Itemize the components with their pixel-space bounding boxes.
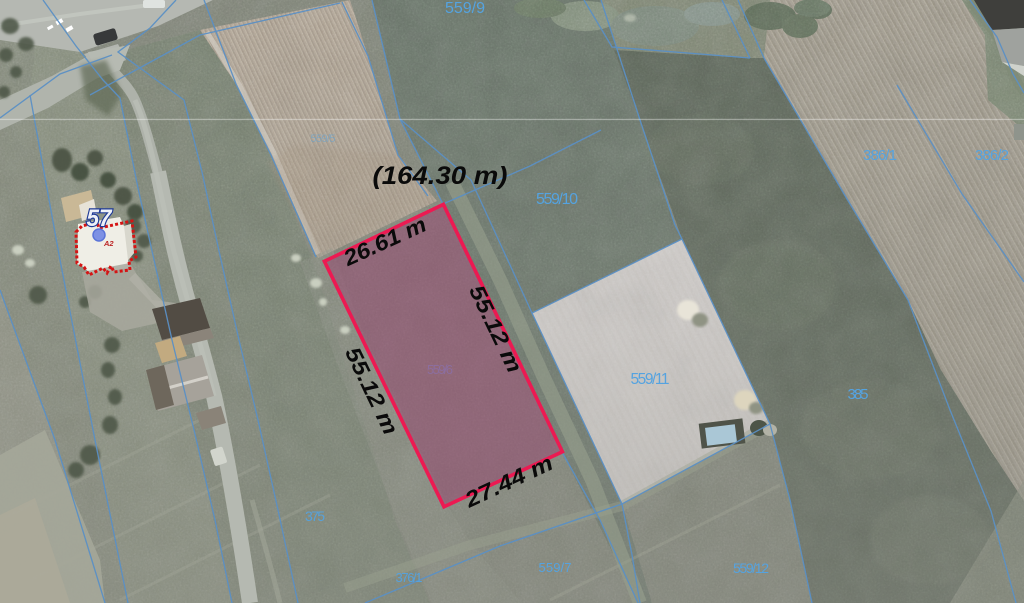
svg-text:559/5: 559/5	[311, 133, 336, 145]
svg-text:386/2: 386/2	[975, 147, 1009, 164]
svg-text:376/1: 376/1	[396, 570, 423, 585]
svg-text:A2: A2	[103, 239, 114, 248]
svg-text:57: 57	[87, 205, 114, 232]
svg-text:375: 375	[305, 508, 325, 524]
svg-text:385: 385	[848, 386, 869, 403]
svg-text:559/11: 559/11	[631, 371, 670, 388]
svg-text:386/1: 386/1	[863, 147, 897, 164]
svg-text:559/9: 559/9	[445, 0, 485, 17]
svg-text:559/12: 559/12	[733, 560, 769, 576]
svg-text:559/7: 559/7	[539, 560, 572, 575]
svg-text:(164.30 m): (164.30 m)	[373, 162, 508, 190]
svg-text:559/10: 559/10	[536, 191, 578, 208]
